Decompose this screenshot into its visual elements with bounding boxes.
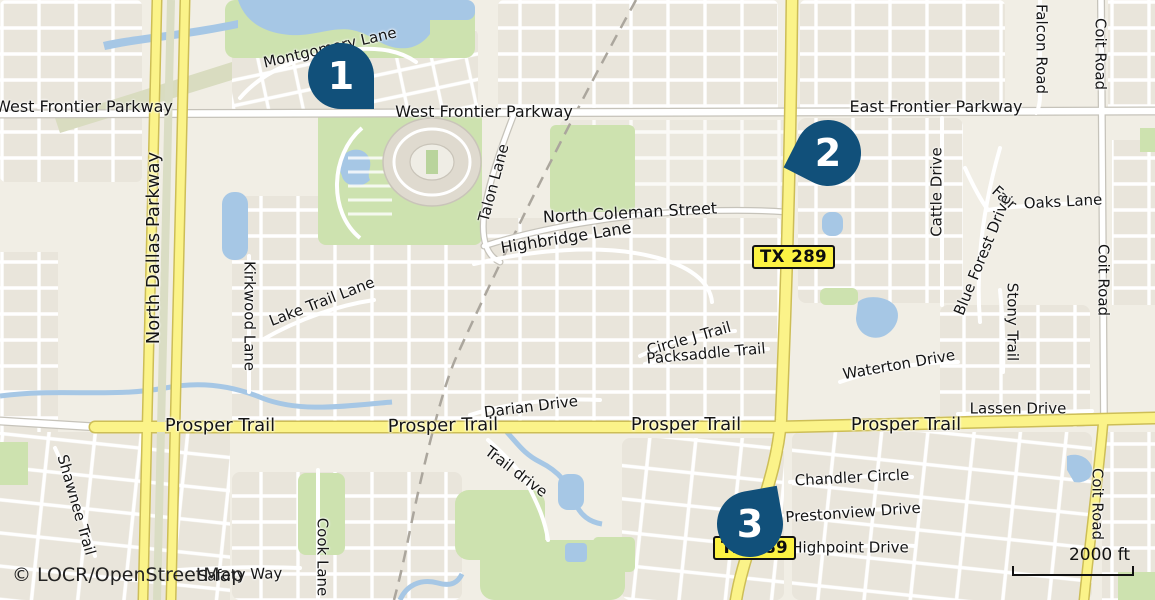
map-marker-3-number: 3: [717, 491, 783, 557]
street-label-lassen-drive: Lassen Drive: [970, 402, 1067, 417]
street-label-east-frontier-parkway: East Frontier Parkway: [850, 99, 1023, 115]
map-viewport[interactable]: West Frontier Parkway West Frontier Park…: [0, 0, 1155, 600]
street-label-north-dallas-parkway: North Dallas Parkway: [145, 152, 163, 344]
street-label-coit-road-2: Coit Road: [1096, 244, 1111, 316]
street-label-west-frontier-parkway-2: West Frontier Parkway: [395, 104, 573, 120]
street-label-kirkwood-lane: Kirkwood Lane: [242, 261, 257, 371]
map-marker-2-number: 2: [795, 120, 861, 186]
map-marker-2[interactable]: 2: [784, 109, 873, 198]
map-marker-3[interactable]: 3: [712, 486, 788, 562]
street-label-prosper-trail-4: Prosper Trail: [851, 416, 961, 434]
street-label-falcon-road: Falcon Road: [1034, 4, 1049, 94]
scale-label: 2000 ft: [1012, 545, 1130, 565]
tx289-shield-north: TX 289: [752, 245, 835, 269]
street-label-cattle-drive: Cattle Drive: [930, 147, 945, 237]
street-label-stony-trail: Stony Trail: [1005, 283, 1020, 361]
street-label-highpoint-drive: Highpoint Drive: [791, 541, 909, 556]
street-label-coit-road-3: Coit Road: [1090, 468, 1105, 540]
street-label-cook-lane: Cook Lane: [315, 518, 330, 597]
street-label-oaks-lane: Oaks Lane: [1023, 192, 1102, 211]
street-label-coit-road-1: Coit Road: [1093, 18, 1108, 90]
street-label-west-frontier-parkway-1: West Frontier Parkway: [0, 99, 173, 115]
map-canvas: [0, 0, 1155, 600]
street-label-prosper-trail-1: Prosper Trail: [165, 417, 275, 435]
map-marker-1[interactable]: 1: [308, 43, 374, 109]
map-attribution: © LOCR/OpenStreetMap: [12, 564, 243, 586]
scale-bar: [1012, 566, 1134, 576]
street-label-prosper-trail-3: Prosper Trail: [631, 416, 741, 434]
street-label-prosper-trail-2: Prosper Trail: [388, 416, 499, 436]
map-marker-1-number: 1: [308, 43, 374, 109]
